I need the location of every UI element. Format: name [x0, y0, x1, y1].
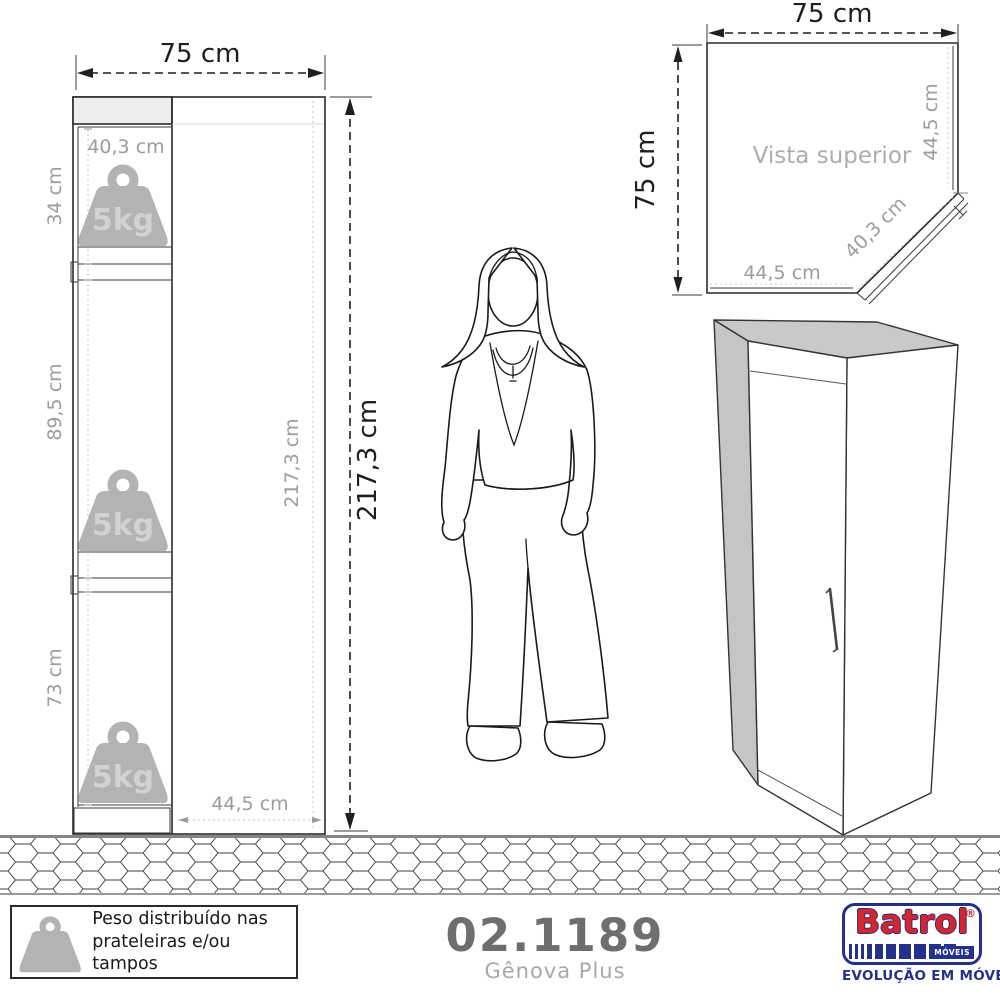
cabinet-right-face — [843, 345, 958, 835]
weight-icon: 5kg — [78, 169, 167, 246]
legend-box: Peso distribuído nas prateleiras e/ou ta… — [10, 905, 298, 979]
top-view-door-label: 40,3 cm — [841, 193, 911, 263]
legend-weight-icon — [18, 909, 82, 975]
legend-line-1: Peso distribuído nas — [92, 908, 296, 931]
cabinet-door-face — [748, 341, 847, 835]
legend-line-2: prateleiras e/ou tampos — [92, 931, 296, 977]
top-view-right-label: 44,5 cm — [920, 83, 942, 160]
brand-logo: Batrol ® MÓVEIS EVOLUÇÃO EM MÓVEIS — [842, 903, 990, 995]
perspective-view — [680, 315, 1000, 840]
top-view-width-label: 75 cm — [792, 0, 873, 29]
section-top-label: 34 cm — [44, 166, 66, 225]
legend-text: Peso distribuído nas prateleiras e/ou ta… — [92, 908, 296, 976]
diagram-page: 75 cm — [0, 0, 1000, 1000]
brand-logo-box: Batrol ® MÓVEIS — [842, 903, 982, 965]
person-shoe-left — [467, 726, 521, 761]
section-bottom-label: 73 cm — [44, 648, 66, 707]
bottom-width-label: 44,5 cm — [211, 793, 288, 815]
top-view-door-handle — [954, 206, 967, 219]
brand-sublabel: MÓVEIS — [930, 946, 974, 959]
inner-height-label: 217,3 cm — [281, 418, 303, 507]
front-height-label: 217,3 cm — [353, 399, 383, 521]
top-view-bottom-label: 44,5 cm — [743, 262, 820, 284]
weight-icon: 5kg — [78, 474, 167, 551]
top-view-depth-label: 75 cm — [631, 130, 661, 211]
product-code: 02.1189 — [405, 912, 705, 959]
top-view-title: Vista superior — [753, 143, 912, 169]
weight-label: 5kg — [92, 508, 154, 543]
product-name: Gênova Plus — [405, 959, 705, 983]
front-view: 75 cm — [0, 0, 400, 850]
weight-icon: 5kg — [78, 726, 167, 803]
top-view: 75 cm 75 cm — [620, 0, 1000, 310]
top-shelf-width-label: 40,3 cm — [87, 136, 164, 158]
person-shoe-right — [545, 722, 605, 757]
person-figure — [390, 240, 630, 780]
brand-tagline: EVOLUÇÃO EM MÓVEIS — [842, 968, 990, 984]
brand-name: Batrol — [855, 902, 968, 941]
cabinet-base — [74, 805, 172, 833]
top-view-door — [857, 193, 968, 304]
top-view-depth-dimension — [672, 45, 702, 295]
section-middle-label: 89,5 cm — [44, 363, 66, 440]
weight-label: 5kg — [92, 760, 154, 795]
front-width-label: 75 cm — [160, 39, 241, 69]
weight-label: 5kg — [92, 203, 154, 238]
registered-mark: ® — [965, 907, 976, 920]
shelf-middle — [71, 552, 172, 594]
product-info: 02.1189 Gênova Plus — [405, 912, 705, 983]
